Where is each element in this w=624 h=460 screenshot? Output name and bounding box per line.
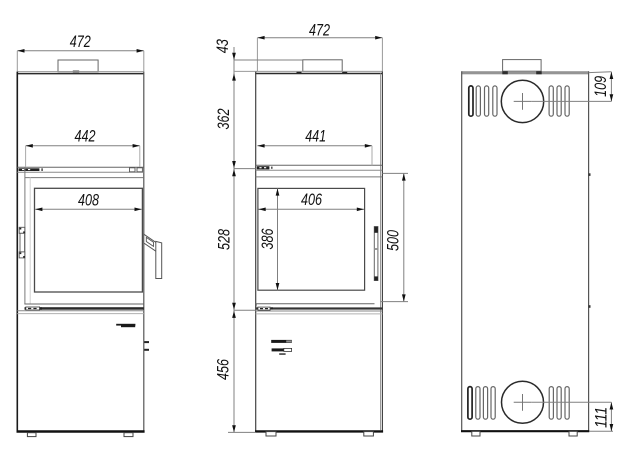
svg-text:442: 442 bbox=[75, 128, 96, 146]
svg-text:472: 472 bbox=[70, 33, 91, 51]
svg-text:500: 500 bbox=[384, 230, 402, 251]
svg-text:456: 456 bbox=[215, 358, 233, 380]
svg-text:43: 43 bbox=[214, 39, 232, 53]
svg-text:111: 111 bbox=[592, 407, 610, 428]
svg-text:441: 441 bbox=[305, 127, 326, 145]
svg-text:109: 109 bbox=[592, 76, 610, 97]
svg-text:408: 408 bbox=[78, 191, 100, 209]
svg-text:386: 386 bbox=[259, 228, 277, 250]
svg-text:406: 406 bbox=[301, 191, 323, 209]
svg-text:528: 528 bbox=[215, 228, 233, 250]
svg-text:362: 362 bbox=[215, 109, 233, 130]
svg-text:472: 472 bbox=[309, 22, 330, 40]
